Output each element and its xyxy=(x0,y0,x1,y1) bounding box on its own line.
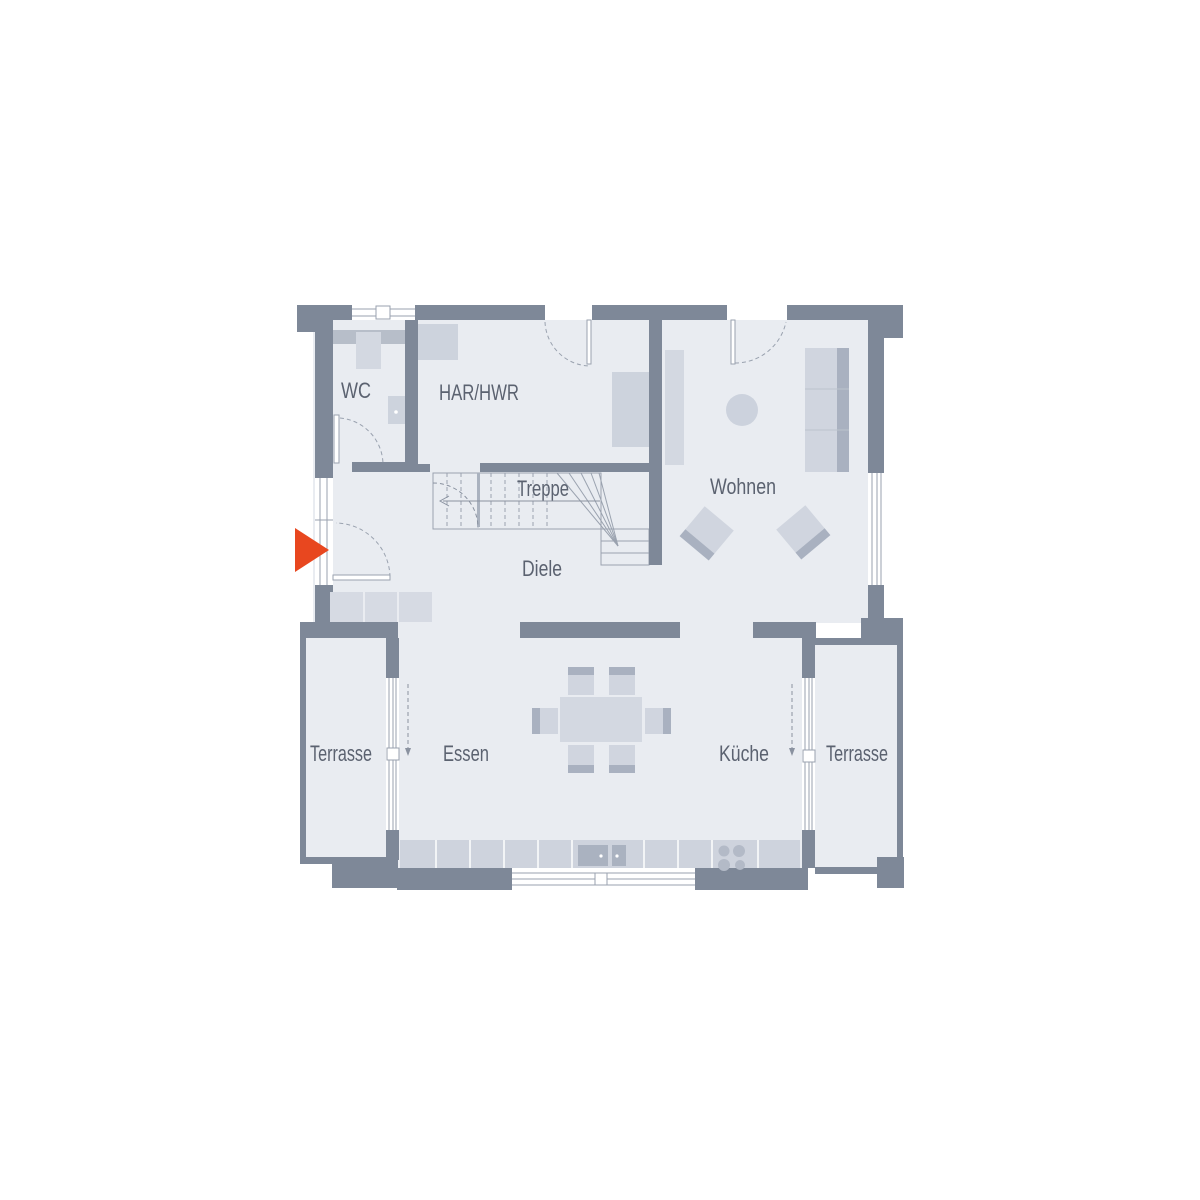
room-label-kueche: Küche xyxy=(719,741,769,766)
floor-plan-drawing: WC HAR/HWR Treppe Diele Wohnen Terrasse … xyxy=(0,0,1200,1200)
room-label-har-hwr: HAR/HWR xyxy=(439,380,519,405)
wall-stair-top xyxy=(480,463,662,472)
room-label-essen: Essen xyxy=(443,741,489,766)
slider-terrace-left xyxy=(386,678,399,830)
wall-bottom-left xyxy=(397,868,512,890)
wall-stub-middle xyxy=(520,622,680,638)
wall-har-wohnen xyxy=(649,320,662,565)
slider-terrace-right xyxy=(802,678,815,830)
room-label-diele: Diele xyxy=(522,556,562,581)
coffee-table xyxy=(726,394,758,426)
wall-bottom-right xyxy=(695,868,808,890)
wall-left-upper xyxy=(315,305,333,478)
window-wohnen xyxy=(868,473,884,585)
shelf xyxy=(665,350,684,465)
sideboard xyxy=(330,592,432,622)
wall-right-upper xyxy=(868,320,884,473)
wall-diele-terrace xyxy=(300,622,398,638)
terrace-right-border xyxy=(815,638,903,645)
wall-wc-har xyxy=(405,320,418,472)
washbasin xyxy=(388,396,405,424)
kitchen-counter xyxy=(400,840,800,871)
stair-cut-line xyxy=(477,473,480,527)
window-bottom xyxy=(512,868,695,890)
dining-table xyxy=(560,697,642,742)
room-label-terrasse-right: Terrasse xyxy=(826,741,888,766)
sink xyxy=(578,845,608,866)
floor-plan-page: WC HAR/HWR Treppe Diele Wohnen Terrasse … xyxy=(0,0,1200,1200)
toilet xyxy=(356,332,381,369)
room-label-wohnen: Wohnen xyxy=(710,474,776,499)
room-label-wc: WC xyxy=(341,378,371,403)
window-wc xyxy=(352,305,415,320)
har-cabinet-2 xyxy=(612,372,649,447)
wall-wc-bottom xyxy=(352,462,405,472)
room-label-terrasse-left: Terrasse xyxy=(310,741,372,766)
sofa xyxy=(805,348,849,472)
terrace-left-border xyxy=(300,633,306,864)
room-label-treppe: Treppe xyxy=(517,476,569,501)
har-cabinet-1 xyxy=(418,324,458,360)
wall-foot xyxy=(398,464,430,472)
wall-stub-right xyxy=(753,622,816,638)
